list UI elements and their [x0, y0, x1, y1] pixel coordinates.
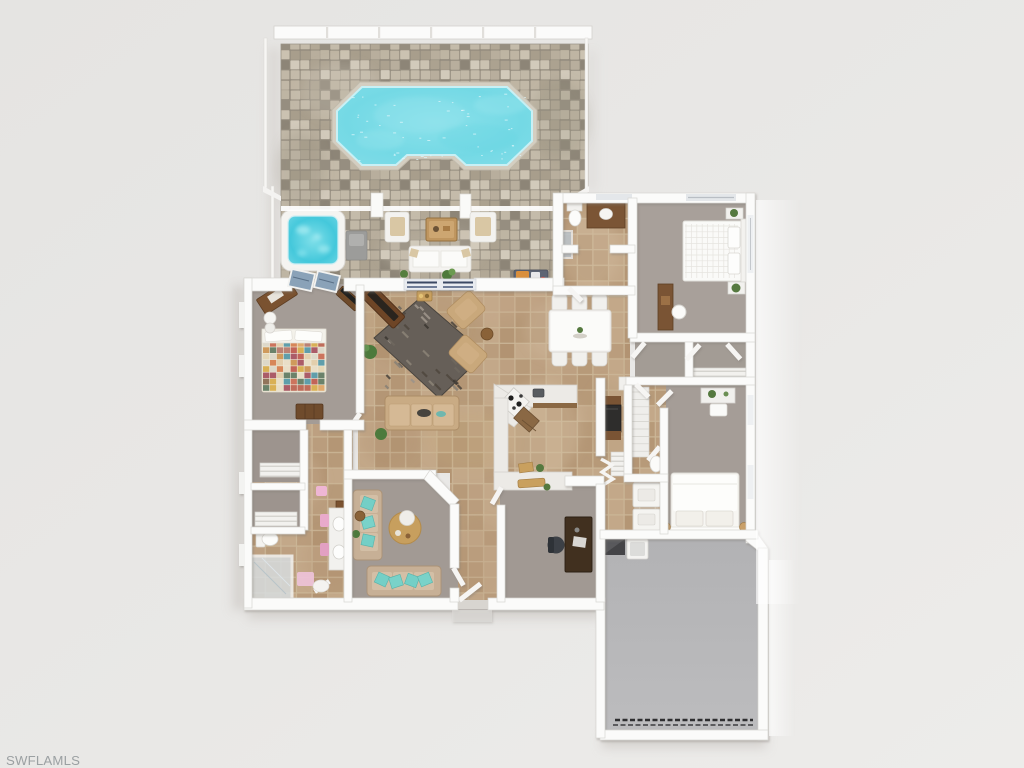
svg-text:SWFLAMLS: SWFLAMLS — [6, 753, 80, 768]
